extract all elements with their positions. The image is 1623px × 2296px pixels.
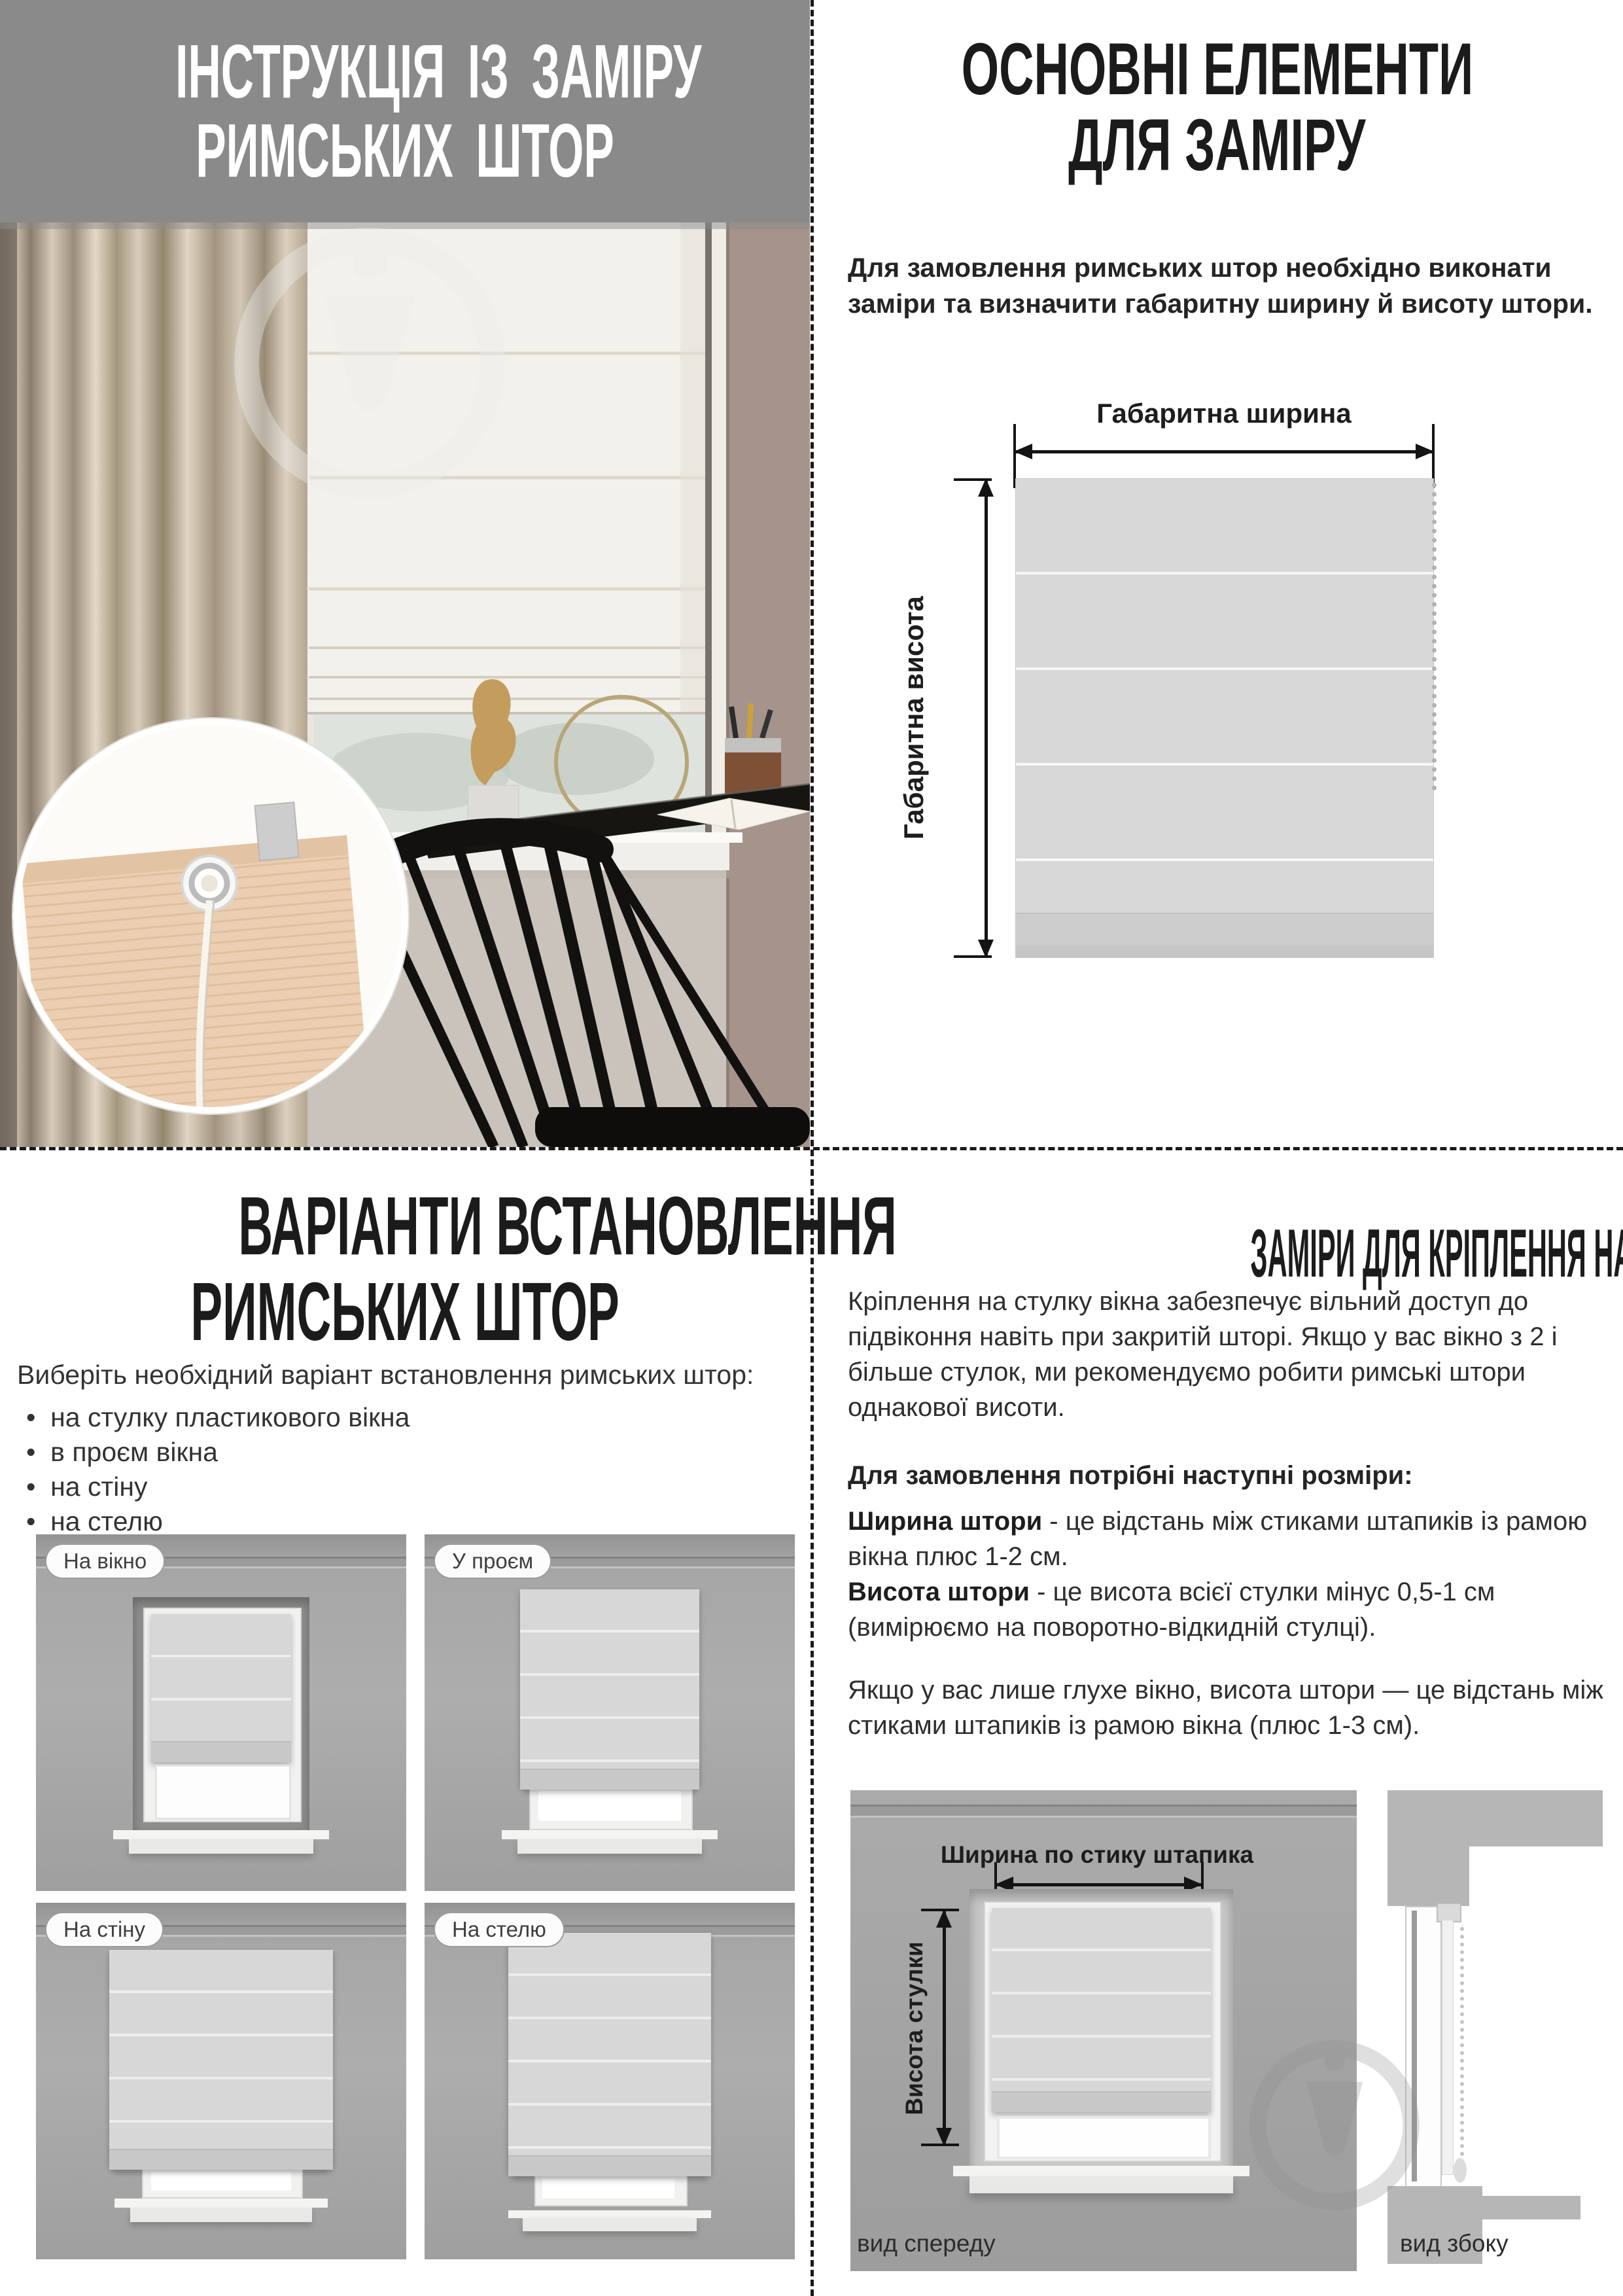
page-title-line2: РИМСЬКИХ ШТОР: [0, 111, 810, 190]
definition-width: Ширина штори - це відстань між стиками ш…: [848, 1504, 1607, 1574]
section-title-variants: ВАРІАНТИ ВСТАНОВЛЕННЯ РИМСЬКИХ ШТОР: [0, 1183, 810, 1354]
side-view-blind-profile: [1442, 1920, 1454, 2175]
sash-height-tick-bottom: [921, 2144, 959, 2146]
roman-blind: [151, 1614, 291, 1762]
roman-blind: [508, 1933, 711, 2176]
sill: [114, 2199, 328, 2208]
blind-bottom-bar: [1016, 945, 1433, 957]
bl-intro-text: Виберіть необхідний варіант встановлення…: [17, 1360, 805, 1390]
overall-width-label: Габаритна ширина: [1028, 398, 1420, 429]
overall-height-arrow: [985, 480, 988, 957]
blind-chain: [1432, 483, 1437, 790]
tr-title-line2: ДЛЯ ЗАМІРУ: [811, 107, 1623, 183]
sill: [508, 2210, 711, 2218]
brand-watermark-icon: [1243, 2034, 1426, 2217]
height-tick-top: [954, 478, 992, 481]
sill-front: [130, 2208, 312, 2222]
roman-blind: [992, 1908, 1211, 2112]
br-definitions: Ширина штори - це відстань між стиками ш…: [848, 1504, 1607, 1645]
tile-on-window-label: На вікно: [45, 1544, 165, 1579]
tile-in-opening: У проєм: [425, 1534, 795, 1891]
definition-height-term: Висота штори: [848, 1578, 1030, 1606]
section-title-elements: ОСНОВНІ ЕЛЕМЕНТИ ДЛЯ ЗАМІРУ: [811, 31, 1623, 184]
crown-molding: [850, 1805, 1357, 1818]
glass: [151, 2172, 291, 2191]
br-paragraph-1: Кріплення на стулку вікна забезпечує віл…: [848, 1284, 1600, 1425]
tile-in-opening-label: У проєм: [434, 1544, 551, 1579]
tile-on-window: На вікно: [36, 1534, 406, 1891]
bl-title-line2: РИМСЬКИХ ШТОР: [0, 1269, 810, 1354]
br-paragraph-2: Для замовлення потрібні наступні розміри…: [848, 1458, 1600, 1493]
blind-hem: [1016, 913, 1433, 945]
option-wall: на стіну: [26, 1470, 410, 1504]
definition-width-term: Ширина штори: [848, 1507, 1042, 1536]
sill-front: [969, 2176, 1233, 2193]
tr-intro-text: Для замовлення римських штор необхідно в…: [848, 250, 1599, 323]
sash-height-tick-top: [921, 1909, 959, 1911]
sill: [113, 1830, 329, 1839]
side-view-wall-top: [1387, 1790, 1469, 1906]
sash-height-arrow: [943, 1911, 946, 2145]
header-band: ІНСТРУКЦІЯ ІЗ ЗАМІРУ РИМСЬКИХ ШТОР: [0, 0, 810, 222]
glass: [155, 1765, 291, 1820]
side-view-sill-arm: [1482, 2196, 1580, 2219]
sill-front: [523, 2218, 697, 2231]
roman-blind: [520, 1589, 699, 1790]
sash-width-label: Ширина по стику штапика: [934, 1841, 1261, 1869]
glass: [997, 2116, 1211, 2159]
overall-height-label: Габаритна висота: [898, 596, 930, 839]
roman-blind: [109, 1950, 333, 2170]
side-view-label: вид збоку: [1400, 2230, 1509, 2257]
side-view-ceiling-bar: [1469, 1790, 1603, 1846]
glass: [542, 2179, 674, 2199]
overall-width-arrow: [1015, 450, 1433, 453]
sash-width-arrow: [996, 1883, 1201, 1886]
page-title-line1: ІНСТРУКЦІЯ ІЗ ЗАМІРУ: [0, 32, 810, 111]
side-view-chain: [1460, 1927, 1464, 2156]
tr-title-line1: ОСНОВНІ ЕЛЕМЕНТИ: [811, 31, 1623, 107]
option-sash: на стулку пластикового вікна: [26, 1400, 410, 1435]
sill-front: [517, 1839, 702, 1854]
section-title-sash-measure: ЗАМІРИ ДЛЯ КРІПЛЕННЯ НА СТУЛКУ ВІКНА: [811, 1218, 1623, 1289]
install-options-list: на стулку пластикового вікна в проєм вік…: [26, 1400, 410, 1539]
instruction-poster: ІНСТРУКЦІЯ ІЗ ЗАМІРУ РИМСЬКИХ ШТОР: [0, 0, 1623, 2296]
tile-on-wall: На стіну: [36, 1903, 406, 2259]
sash-height-label: Висота стулки: [901, 1941, 928, 2115]
sill-front: [129, 1839, 313, 1854]
divider-horizontal: [0, 1147, 1623, 1150]
blind-diagram: [1015, 478, 1434, 958]
definition-height: Висота штори - це висота всієї стулки мі…: [848, 1574, 1607, 1645]
sill: [502, 1830, 718, 1839]
tile-on-ceiling-label: На стелю: [434, 1912, 565, 1947]
bl-title-line1: ВАРІАНТИ ВСТАНОВЛЕННЯ: [0, 1183, 810, 1269]
height-tick-bottom: [954, 955, 992, 958]
interior-photo: [0, 222, 810, 1147]
side-wall: [726, 222, 810, 1147]
sill: [953, 2166, 1249, 2176]
option-opening: в проєм вікна: [26, 1435, 410, 1470]
br-paragraph-3: Якщо у вас лише глухе вікно, висота штор…: [848, 1672, 1607, 1743]
front-view-label: вид спереду: [857, 2230, 996, 2257]
tile-on-wall-label: На стіну: [45, 1912, 164, 1947]
tile-on-ceiling: На стелю: [425, 1903, 795, 2259]
mount-bracket: [255, 802, 299, 860]
side-view-chain-weight: [1454, 2158, 1467, 2183]
glass: [538, 1791, 681, 1821]
